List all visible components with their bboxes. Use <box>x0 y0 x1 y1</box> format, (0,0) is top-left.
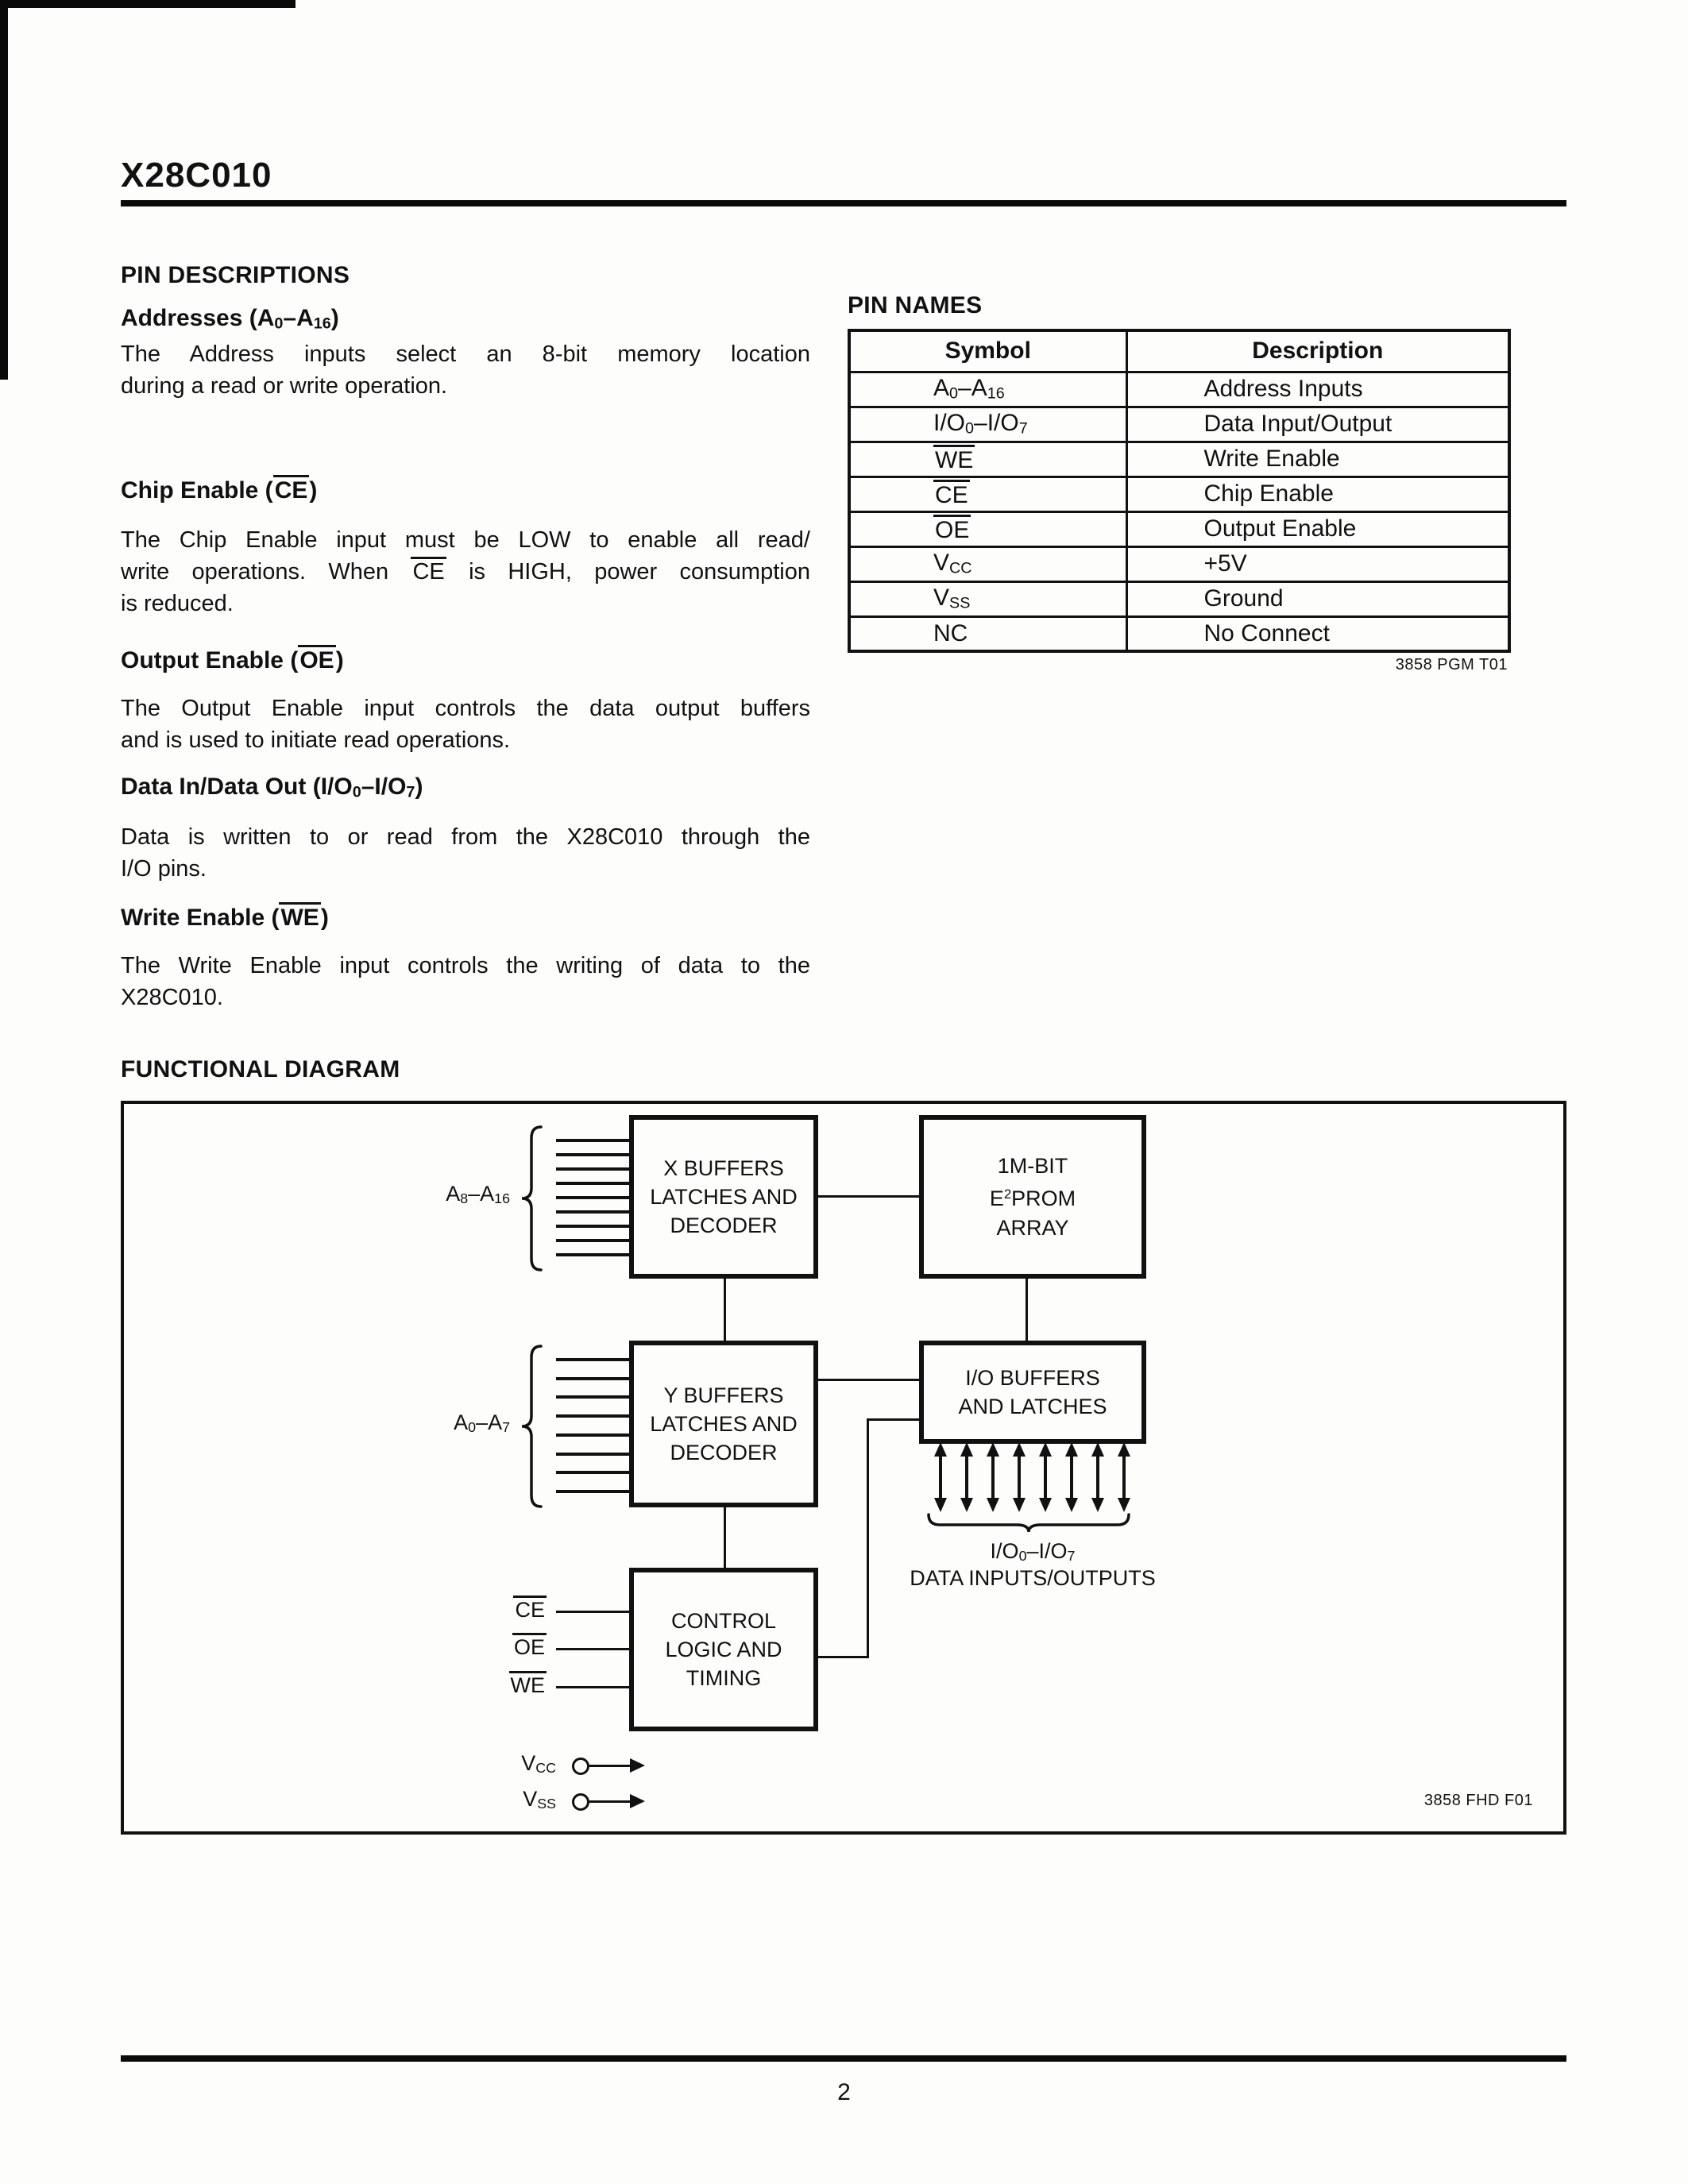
double-arrow-icon <box>1013 1442 1026 1512</box>
block-io-buffers: I/O BUFFERS AND LATCHES <box>919 1341 1146 1444</box>
double-arrow-icon <box>1039 1442 1052 1512</box>
we-input-line <box>556 1686 629 1688</box>
bus-line <box>556 1225 629 1228</box>
bus-line <box>556 1253 629 1256</box>
cell-description: Output Enable <box>1126 511 1509 546</box>
block-label-line: ARRAY <box>996 1214 1068 1242</box>
label-address-low: A0–A7 <box>381 1410 510 1436</box>
paragraph-line: write operations. When CE is HIGH, power… <box>121 556 810 588</box>
block-label-line: DECODER <box>670 1211 777 1240</box>
bus-line <box>556 1490 629 1493</box>
section-paragraph: The Output Enable input controls the dat… <box>121 693 810 756</box>
block-label-line: LATCHES AND <box>650 1183 798 1211</box>
functional-diagram-heading: FUNCTIONAL DIAGRAM <box>121 1056 400 1083</box>
double-arrow-icon <box>987 1442 999 1512</box>
label-address-high: A8–A16 <box>381 1182 510 1207</box>
scan-artifact-left <box>0 0 8 380</box>
section-paragraph: Data is written to or read from the X28C… <box>121 821 810 885</box>
bus-line <box>556 1433 629 1437</box>
bus-line <box>556 1139 629 1142</box>
label-vcc: VCC <box>413 1751 556 1777</box>
connector-y-to-io <box>818 1379 919 1381</box>
vcc-arrowhead-icon <box>630 1758 645 1773</box>
table-row: VSS Ground <box>849 581 1509 616</box>
block-y-buffers: Y BUFFERS LATCHES AND DECODER <box>629 1341 818 1507</box>
cell-description: No Connect <box>1126 616 1509 651</box>
cell-symbol: WE <box>849 442 1126 477</box>
section-heading-chip-enable: Chip Enable (CE) <box>121 475 317 504</box>
table-figure-ref: 3858 PGM T01 <box>1112 656 1508 674</box>
connector-x-to-y <box>724 1279 726 1341</box>
table-row: NC No Connect <box>849 616 1509 651</box>
block-label-line: I/O BUFFERS <box>965 1364 1100 1392</box>
table-row: VCC +5V <box>849 546 1509 581</box>
column-header-description: Description <box>1126 330 1509 372</box>
cell-symbol: CE <box>849 477 1126 511</box>
bus-address-low <box>556 1358 629 1493</box>
double-arrow-icon <box>934 1442 947 1512</box>
cell-symbol: VSS <box>849 581 1126 616</box>
section-paragraph: The Chip Enable input must be LOW to ena… <box>121 524 810 619</box>
vcc-terminal-icon <box>572 1758 589 1775</box>
cell-symbol: NC <box>849 616 1126 651</box>
block-label-line: X BUFFERS <box>663 1154 784 1183</box>
bus-line <box>556 1153 629 1156</box>
bus-line <box>556 1414 629 1418</box>
label-oe: OE <box>413 1633 547 1660</box>
table-row: CE Chip Enable <box>849 477 1509 511</box>
block-label-line: 1M-BIT <box>998 1152 1068 1180</box>
block-label-line: TIMING <box>686 1664 762 1692</box>
paragraph-line: during a read or write operation. <box>121 370 810 402</box>
bus-line <box>556 1182 629 1185</box>
table-row: OE Output Enable <box>849 511 1509 546</box>
section-heading-data-in-out: Data In/Data Out (I/O0–I/O7) <box>121 774 423 802</box>
block-eeprom-array: 1M-BIT E2PROM ARRAY <box>919 1115 1146 1279</box>
paragraph-line: The Chip Enable input must be LOW to ena… <box>121 524 810 556</box>
bus-line <box>556 1358 629 1361</box>
scan-artifact-top <box>0 0 295 8</box>
section-heading-addresses: Addresses (A0–A16) <box>121 305 339 334</box>
brace-address-high <box>516 1125 545 1272</box>
connector-y-to-control <box>724 1507 726 1568</box>
pin-names-table: Symbol Description A0–A16 Address Inputs… <box>848 329 1511 653</box>
block-label-line: AND LATCHES <box>958 1392 1107 1421</box>
bus-line <box>556 1395 629 1399</box>
cell-description: Data Input/Output <box>1126 407 1509 442</box>
footer-rule <box>121 2055 1566 2062</box>
cell-description: Chip Enable <box>1126 477 1509 511</box>
datasheet-page: X28C010 PIN DESCRIPTIONS Addresses (A0–A… <box>0 0 1688 2184</box>
label-io-caption: DATA INPUTS/OUTPUTS <box>858 1566 1207 1591</box>
cell-symbol: OE <box>849 511 1126 546</box>
vcc-arrow-line <box>589 1765 631 1767</box>
diagram-figure-ref: 3858 FHD F01 <box>1192 1792 1533 1810</box>
section-paragraph: The Address inputs select an 8-bit memor… <box>121 338 810 402</box>
block-label-line: CONTROL <box>671 1607 776 1635</box>
paragraph-line: The Write Enable input controls the writ… <box>121 950 810 982</box>
label-ce: CE <box>413 1596 547 1623</box>
cell-symbol: I/O0–I/O7 <box>849 407 1126 442</box>
ce-input-line <box>556 1611 629 1613</box>
cell-description: Ground <box>1126 581 1509 616</box>
connector-control-out-v <box>867 1418 869 1658</box>
connector-control-out-h <box>818 1656 869 1658</box>
label-io-range: I/O0–I/O7 <box>906 1539 1160 1565</box>
paragraph-line: Data is written to or read from the X28C… <box>121 821 810 853</box>
double-arrow-icon <box>1065 1442 1078 1512</box>
double-arrow-icon <box>960 1442 973 1512</box>
diagram-frame <box>121 1101 1566 1835</box>
table-row: I/O0–I/O7 Data Input/Output <box>849 407 1509 442</box>
bus-line <box>556 1471 629 1474</box>
block-label-line: LOGIC AND <box>665 1635 782 1664</box>
connector-control-to-io <box>867 1418 919 1421</box>
block-label-line: Y BUFFERS <box>663 1381 783 1410</box>
page-title: X28C010 <box>121 156 272 195</box>
bus-address-high <box>556 1139 629 1256</box>
section-heading-write-enable: Write Enable (WE) <box>121 902 329 932</box>
block-x-buffers: X BUFFERS LATCHES AND DECODER <box>629 1115 818 1279</box>
bus-line <box>556 1239 629 1242</box>
cell-description: +5V <box>1126 546 1509 581</box>
block-label-line: DECODER <box>670 1438 777 1467</box>
pin-descriptions-heading: PIN DESCRIPTIONS <box>121 262 350 289</box>
cell-description: Write Enable <box>1126 442 1509 477</box>
bus-line <box>556 1377 629 1380</box>
paragraph-line: The Address inputs select an 8-bit memor… <box>121 338 810 370</box>
double-arrow-icon <box>1091 1442 1104 1512</box>
block-label-line: LATCHES AND <box>650 1410 798 1438</box>
block-control-logic: CONTROL LOGIC AND TIMING <box>629 1568 818 1731</box>
paragraph-line: The Output Enable input controls the dat… <box>121 693 810 724</box>
table-header-row: Symbol Description <box>849 330 1509 372</box>
cell-description: Address Inputs <box>1126 372 1509 407</box>
table-row: WE Write Enable <box>849 442 1509 477</box>
bus-line <box>556 1453 629 1456</box>
header-rule <box>121 200 1566 206</box>
bus-line <box>556 1167 629 1171</box>
io-underbrace <box>926 1512 1131 1534</box>
paragraph-line: X28C010. <box>121 982 810 1013</box>
connector-array-to-io <box>1026 1279 1028 1341</box>
block-label-line: E2PROM <box>990 1180 1076 1213</box>
cell-symbol: A0–A16 <box>849 372 1126 407</box>
table-row: A0–A16 Address Inputs <box>849 372 1509 407</box>
column-header-symbol: Symbol <box>849 330 1126 372</box>
label-vss: VSS <box>413 1787 556 1812</box>
cell-symbol: VCC <box>849 546 1126 581</box>
double-arrow-icon <box>1118 1442 1130 1512</box>
label-we: WE <box>413 1671 547 1698</box>
io-arrows <box>929 1439 1136 1515</box>
paragraph-line: is reduced. <box>121 588 810 619</box>
paragraph-line: and is used to initiate read operations. <box>121 724 810 756</box>
paragraph-line: I/O pins. <box>121 853 810 885</box>
bus-line <box>556 1210 629 1214</box>
vss-arrow-line <box>589 1800 631 1803</box>
brace-address-low <box>516 1344 545 1509</box>
connector-x-to-array <box>818 1195 919 1198</box>
pin-names-heading: PIN NAMES <box>848 292 982 319</box>
page-number: 2 <box>0 2079 1688 2106</box>
section-paragraph: The Write Enable input controls the writ… <box>121 950 810 1013</box>
bus-line <box>556 1196 629 1199</box>
vss-arrowhead-icon <box>630 1794 645 1808</box>
vss-terminal-icon <box>572 1793 589 1811</box>
oe-input-line <box>556 1648 629 1650</box>
section-heading-output-enable: Output Enable (OE) <box>121 645 344 674</box>
